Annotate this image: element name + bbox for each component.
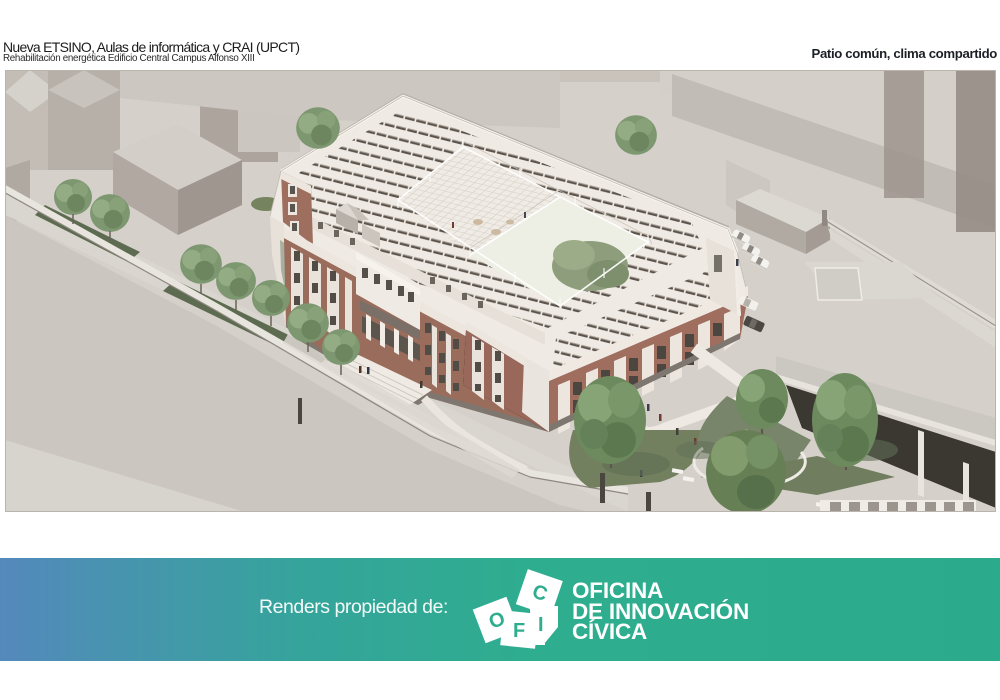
svg-text:F: F: [513, 620, 525, 642]
svg-text:I: I: [538, 614, 544, 636]
